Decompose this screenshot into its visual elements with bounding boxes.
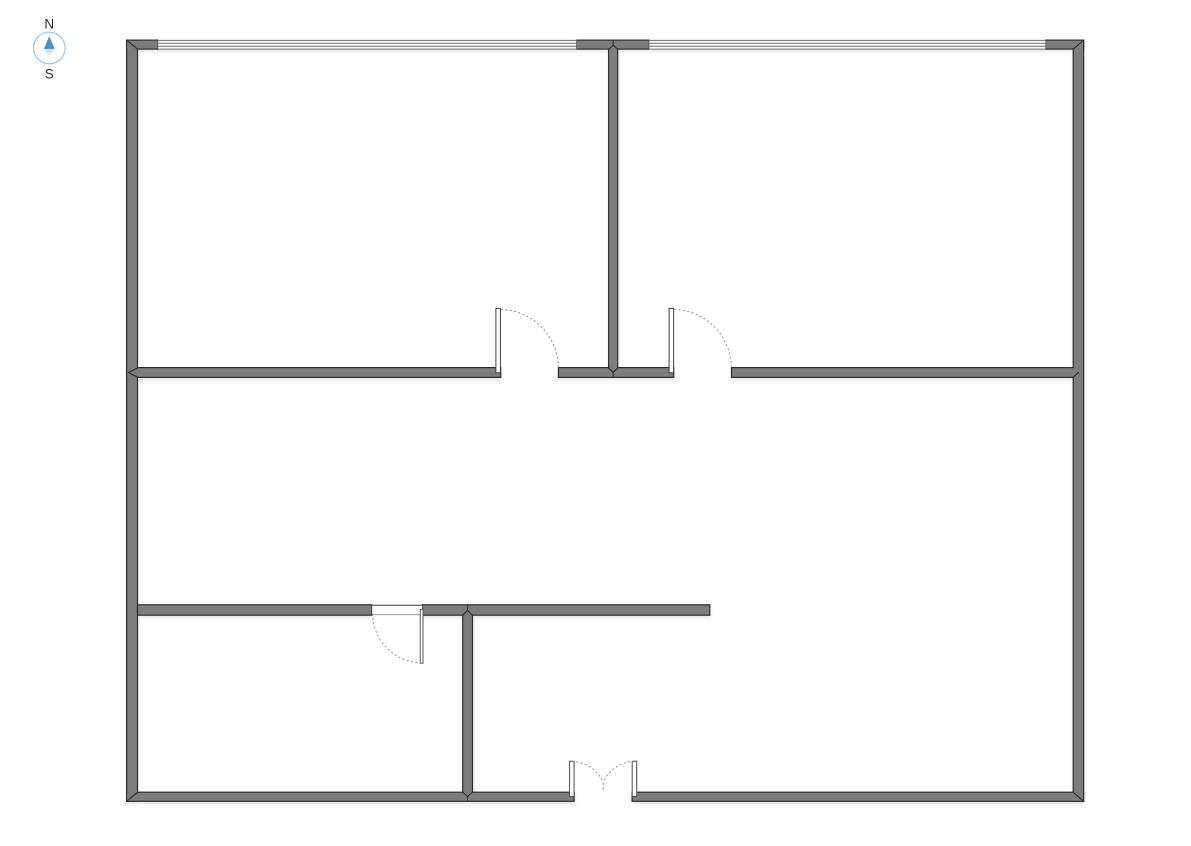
svg-text:N: N — [44, 17, 54, 32]
svg-text:S: S — [45, 66, 54, 81]
